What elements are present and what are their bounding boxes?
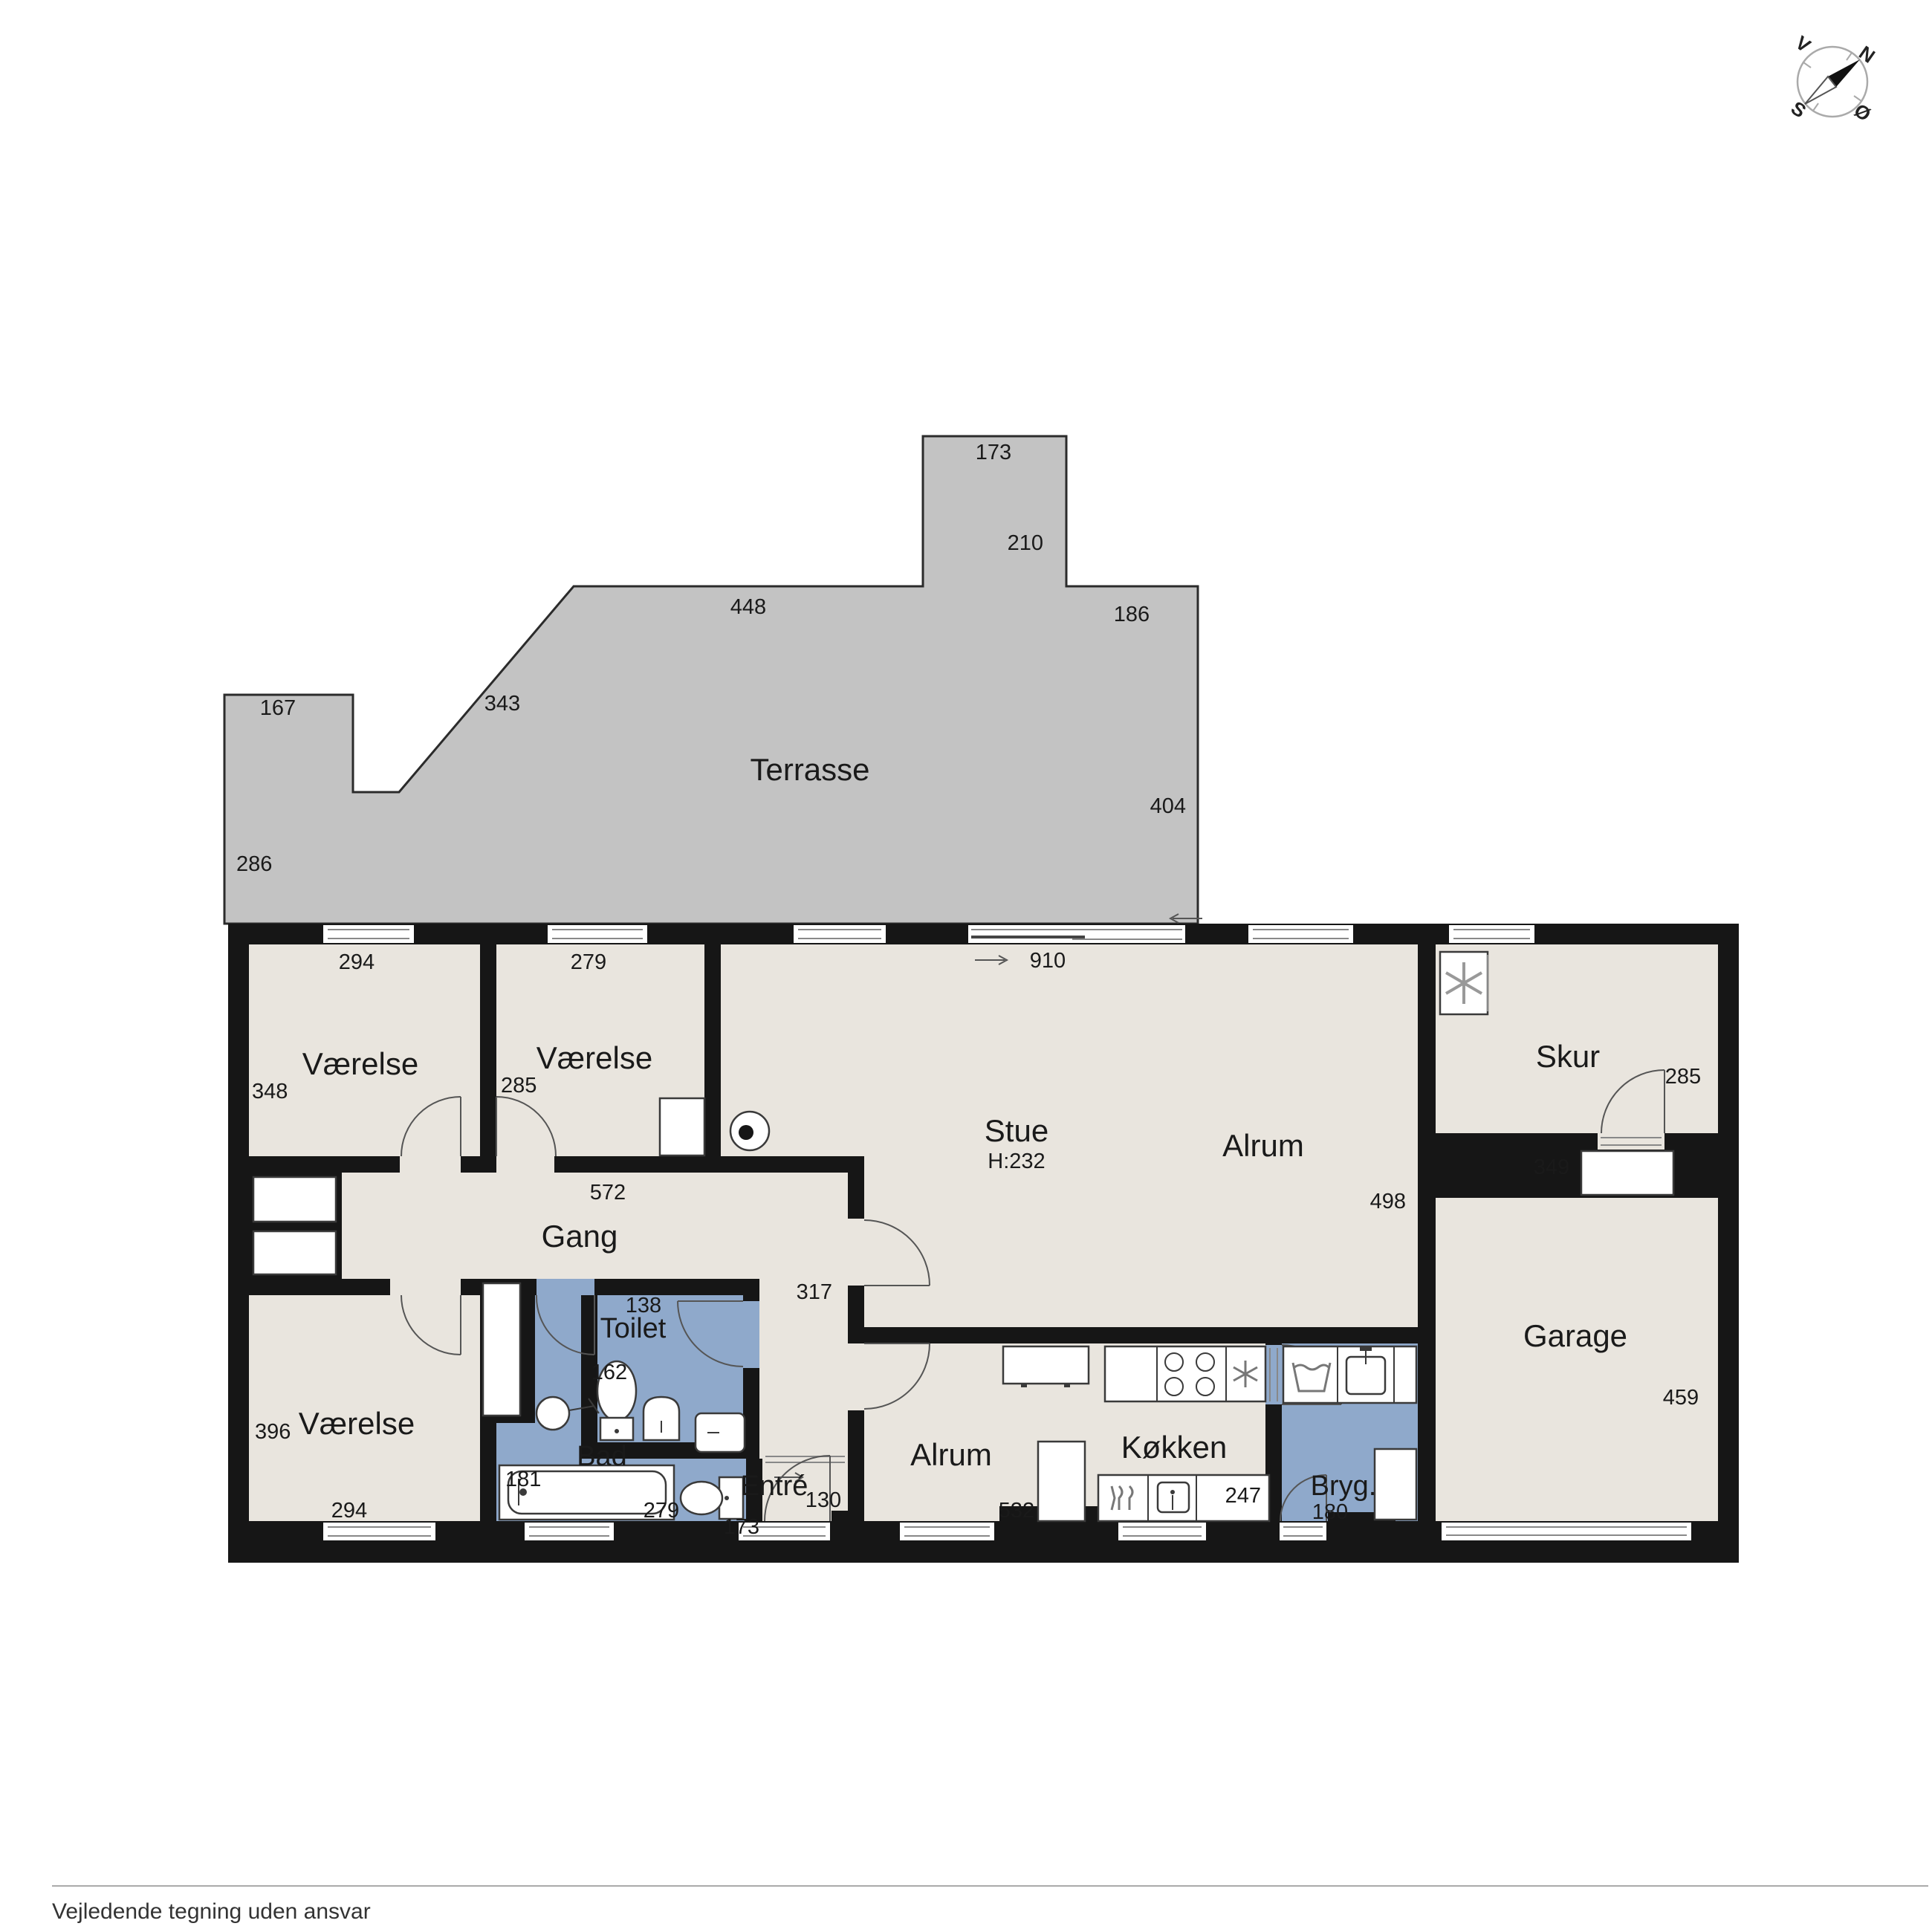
dim-toilet-162: 162 bbox=[591, 1361, 627, 1384]
bryg-label: Bryg. bbox=[1311, 1471, 1377, 1502]
closet-vaerelse3 bbox=[483, 1283, 520, 1416]
dim-alrum-498: 498 bbox=[1370, 1190, 1406, 1213]
floor-plan: Terrasse 173 210 448 186 343 167 286 404 bbox=[0, 0, 1932, 1932]
window bbox=[525, 1523, 614, 1540]
window bbox=[1248, 925, 1353, 943]
dim-v2-285: 285 bbox=[501, 1074, 537, 1098]
kitchen-sink-icon bbox=[1158, 1482, 1189, 1512]
dim-v3-294: 294 bbox=[331, 1499, 367, 1523]
wardrobe-vaerelse2 bbox=[660, 1098, 704, 1155]
terrace-label: Terrasse bbox=[750, 752, 869, 787]
kitchen-peninsula bbox=[1038, 1442, 1085, 1521]
dim-v2-279: 279 bbox=[571, 950, 606, 974]
door-gap-vaerelse1 bbox=[400, 1156, 461, 1173]
dim-entre-173: 173 bbox=[724, 1515, 759, 1539]
alrum-upper-label: Alrum bbox=[1222, 1128, 1304, 1163]
dim-gang-572: 572 bbox=[590, 1181, 626, 1205]
stue-height-label: H:232 bbox=[988, 1150, 1045, 1173]
door-gap-stue bbox=[848, 1219, 864, 1286]
floor-plan-svg: Terrasse 173 210 448 186 343 167 286 404 bbox=[0, 0, 1932, 1932]
bryg-counter bbox=[1283, 1346, 1416, 1403]
stue-label: Stue bbox=[985, 1113, 1048, 1148]
door-gap-bryg-ext bbox=[1280, 1523, 1326, 1540]
dim-alrum2-532: 532 bbox=[999, 1499, 1034, 1523]
dim-terrace-448: 448 bbox=[730, 595, 766, 619]
window bbox=[323, 925, 414, 943]
dim-v3-396: 396 bbox=[255, 1420, 291, 1444]
entre-label: Entré bbox=[741, 1471, 808, 1502]
heat-pump-icon bbox=[1440, 952, 1488, 1014]
dim-garage-459: 459 bbox=[1663, 1386, 1699, 1410]
compass-needle-south bbox=[1805, 77, 1836, 104]
dim-stue-910: 910 bbox=[1030, 949, 1066, 973]
kitchen-counter-top bbox=[1105, 1346, 1265, 1401]
wall-pier bbox=[832, 1511, 864, 1542]
footer: Vejledende tegning uden ansvar bbox=[52, 1886, 1928, 1924]
room-floors bbox=[249, 944, 1718, 1521]
dim-bryg-180: 180 bbox=[1312, 1500, 1348, 1524]
dim-terrace-173: 173 bbox=[976, 441, 1011, 464]
dim-terrace-167: 167 bbox=[260, 696, 296, 720]
vaerelse3-label: Værelse bbox=[299, 1406, 415, 1441]
terrace-deck bbox=[224, 436, 1198, 924]
kitchen-island bbox=[1003, 1346, 1089, 1387]
terrace: Terrasse 173 210 448 186 343 167 286 404 bbox=[224, 436, 1205, 924]
sink-toilet bbox=[644, 1397, 679, 1440]
dim-toilet-138: 138 bbox=[626, 1294, 661, 1317]
dim-bad-181: 181 bbox=[505, 1468, 541, 1491]
dim-terrace-210: 210 bbox=[1008, 531, 1043, 555]
window bbox=[794, 925, 886, 943]
toilet-label: Toilet bbox=[600, 1313, 667, 1344]
window bbox=[323, 1523, 435, 1540]
door-gap-vaerelse3 bbox=[390, 1279, 461, 1295]
wood-stove-dot bbox=[739, 1125, 753, 1140]
alrum-lower-label: Alrum bbox=[910, 1437, 992, 1472]
kokken-label: Køkken bbox=[1121, 1430, 1227, 1465]
dim-bad-279: 279 bbox=[644, 1499, 679, 1523]
dim-kokken-247: 247 bbox=[1225, 1484, 1261, 1508]
sink-bad bbox=[696, 1413, 745, 1452]
door-gap-bad bbox=[537, 1279, 594, 1295]
garage-label: Garage bbox=[1523, 1318, 1627, 1353]
skur-label: Skur bbox=[1536, 1039, 1600, 1074]
dim-terrace-343: 343 bbox=[484, 692, 520, 716]
bryg-cabinet bbox=[1375, 1449, 1416, 1520]
door-gap-alrum bbox=[848, 1343, 864, 1410]
door-gap-bryg bbox=[1265, 1345, 1282, 1404]
dim-hall-317: 317 bbox=[797, 1280, 832, 1304]
bad-label: Bad bbox=[577, 1441, 627, 1472]
compass-o: Ø bbox=[1850, 99, 1876, 126]
garage-step bbox=[1581, 1151, 1673, 1195]
wardrobe-upper bbox=[253, 1177, 336, 1222]
window bbox=[1118, 1523, 1206, 1540]
vaerelse1-label: Værelse bbox=[302, 1046, 418, 1081]
vaerelse2-label: Værelse bbox=[537, 1040, 652, 1075]
wc-bad bbox=[681, 1477, 743, 1519]
dim-entre-130: 130 bbox=[805, 1488, 841, 1512]
window bbox=[1449, 925, 1534, 943]
window bbox=[900, 1523, 994, 1540]
dim-skur-349: 349 bbox=[1534, 1155, 1569, 1179]
compass-n: N bbox=[1855, 42, 1879, 68]
dim-terrace-186: 186 bbox=[1114, 603, 1150, 626]
dim-terrace-286: 286 bbox=[236, 852, 272, 876]
door-gap-toilet bbox=[743, 1301, 759, 1368]
wardrobe-lower bbox=[253, 1231, 336, 1274]
door-gap-skur bbox=[1598, 1133, 1664, 1150]
compass-s: S bbox=[1787, 97, 1810, 123]
dim-v1-348: 348 bbox=[252, 1080, 288, 1103]
garage-door bbox=[1442, 1523, 1691, 1540]
door-gap-vaerelse2 bbox=[496, 1156, 554, 1173]
dim-skur-285: 285 bbox=[1665, 1065, 1701, 1089]
window bbox=[548, 925, 647, 943]
footer-disclaimer: Vejledende tegning uden ansvar bbox=[52, 1899, 371, 1924]
room-garage bbox=[1436, 1198, 1718, 1521]
gang-label: Gang bbox=[542, 1219, 618, 1254]
dim-v1-294: 294 bbox=[339, 950, 375, 974]
dim-terrace-404: 404 bbox=[1150, 794, 1186, 818]
gang-west-wardrobes bbox=[249, 1173, 342, 1279]
compass: V N S Ø bbox=[1787, 31, 1879, 126]
